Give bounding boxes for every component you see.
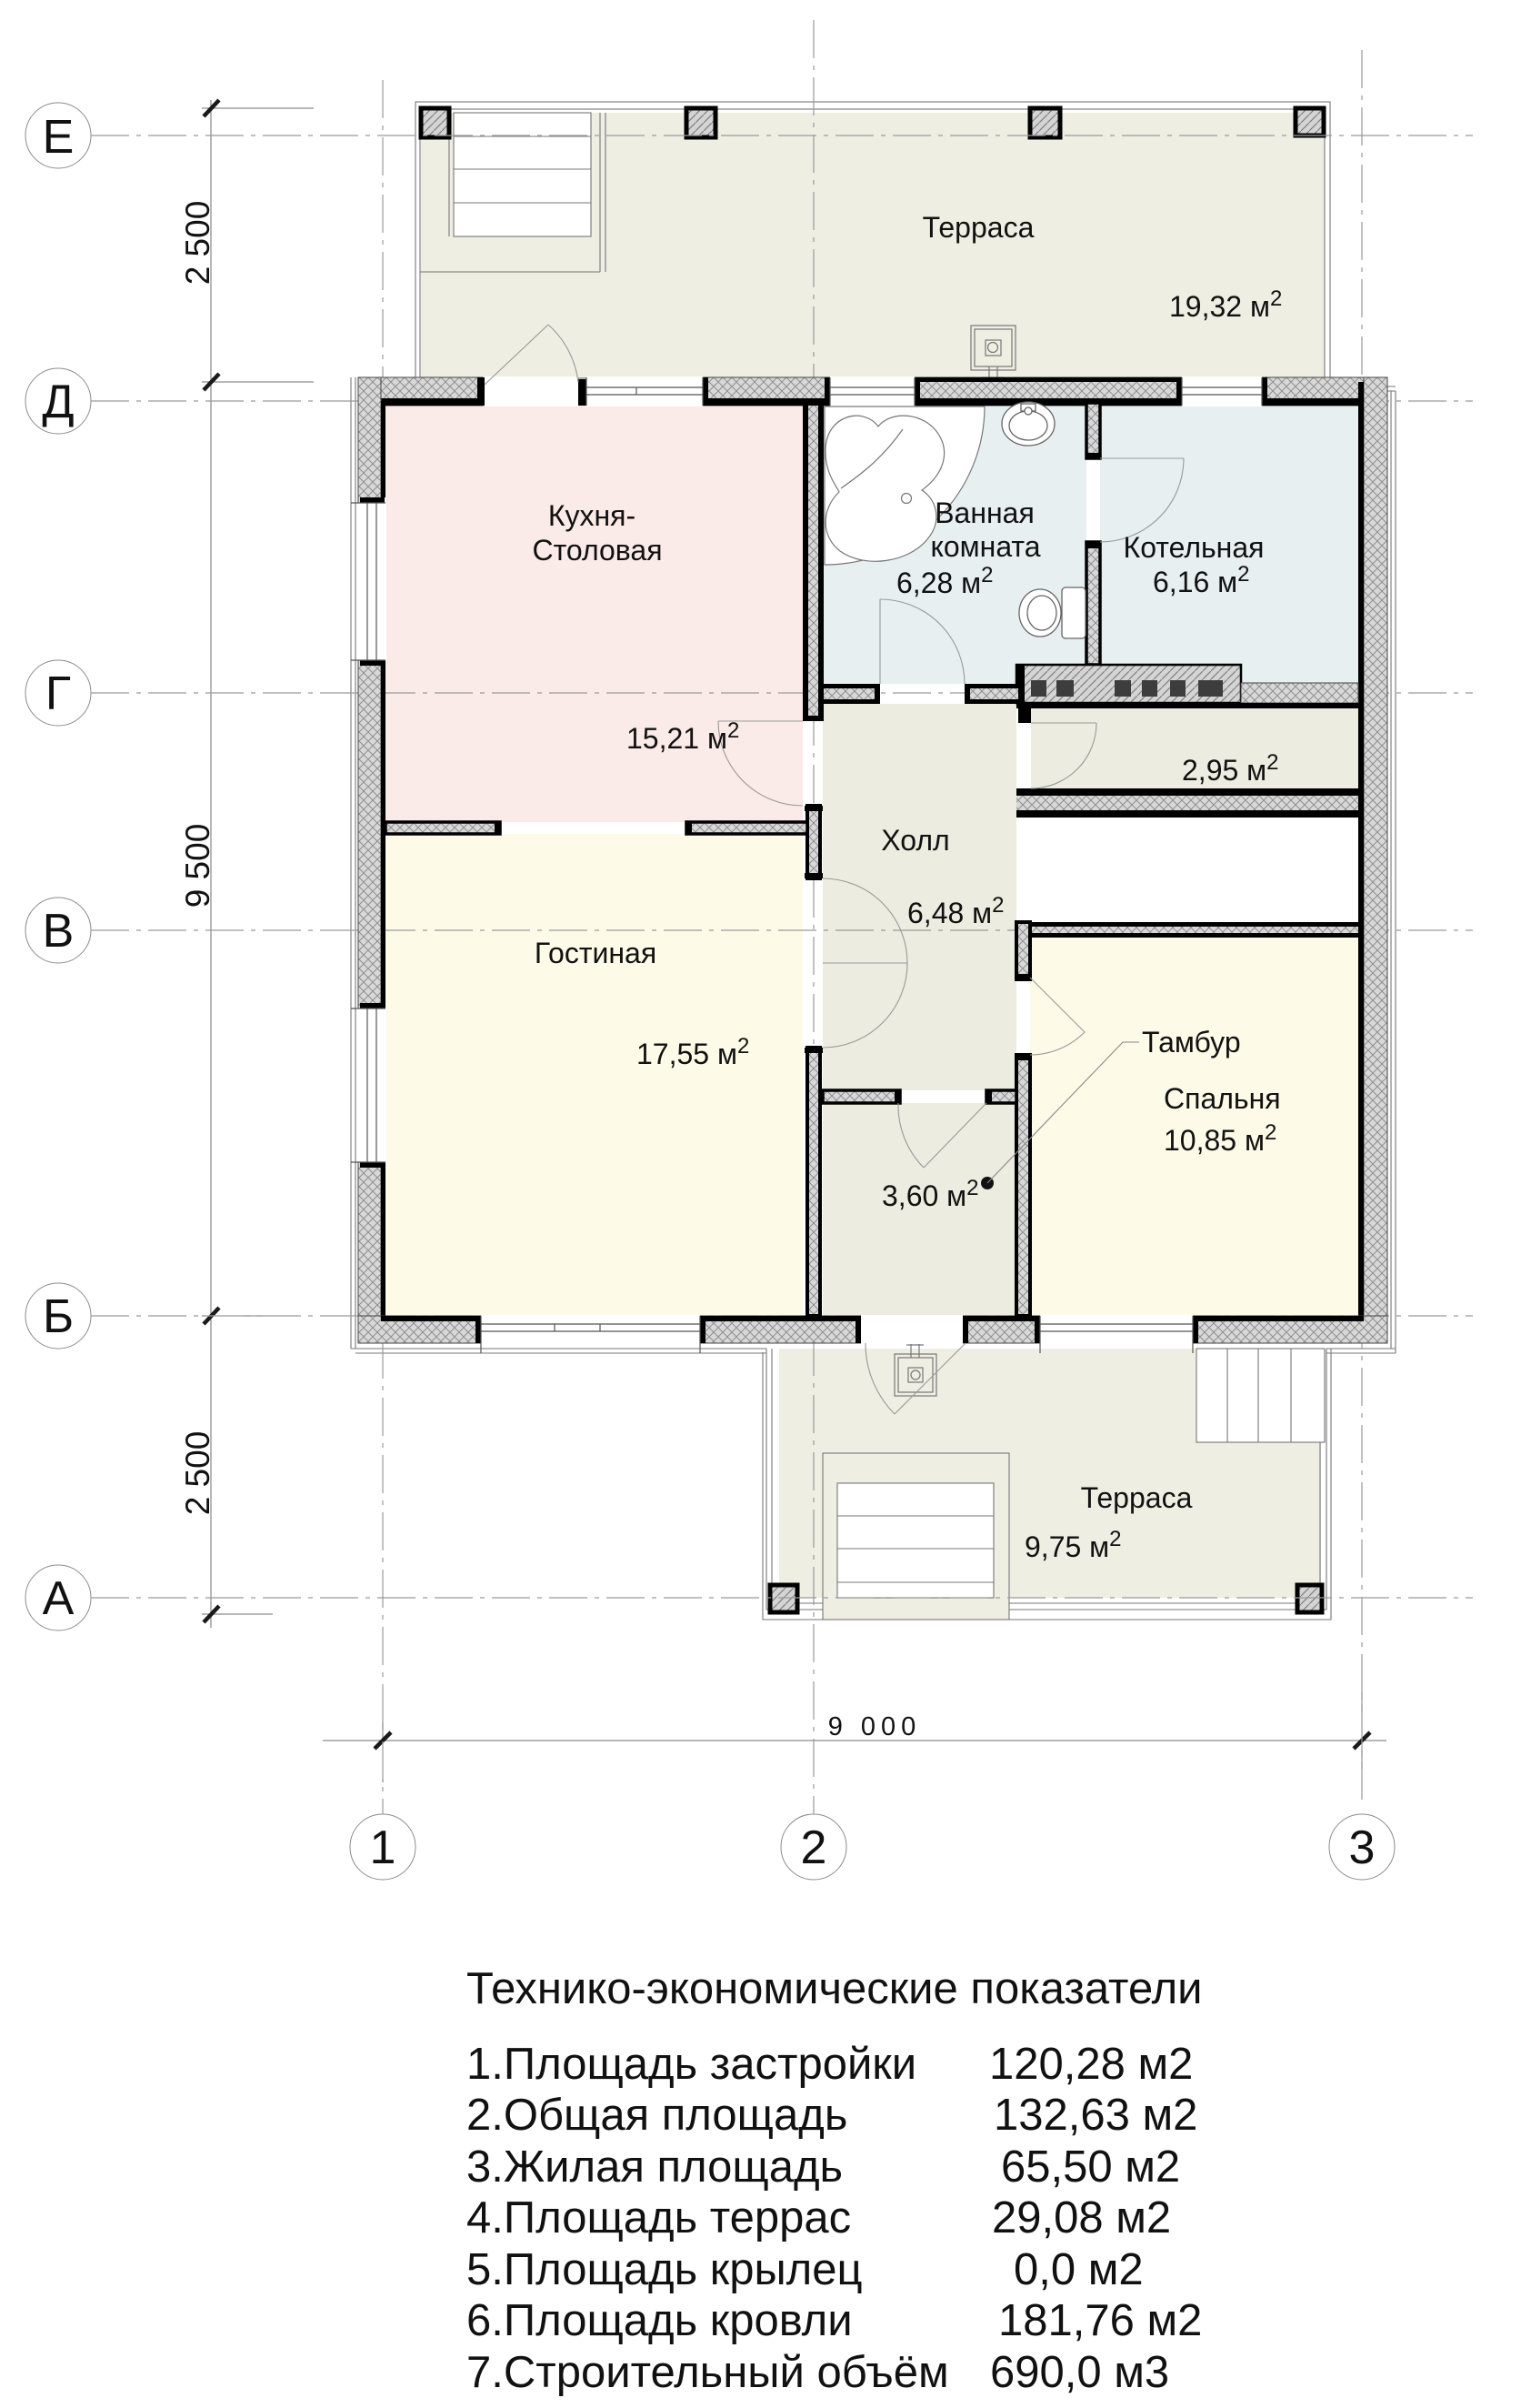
svg-text:15,21 м2: 15,21 м2	[626, 718, 739, 755]
svg-text:181,76 м2: 181,76 м2	[998, 2296, 1202, 2345]
svg-text:2: 2	[801, 1821, 827, 1874]
svg-text:6,16 м2: 6,16 м2	[1153, 562, 1250, 598]
svg-text:Б: Б	[43, 1290, 74, 1343]
svg-text:2,95 м2: 2,95 м2	[1182, 750, 1279, 787]
svg-text:2 500: 2 500	[179, 1431, 216, 1516]
svg-text:А: А	[43, 1572, 75, 1625]
svg-text:29,08 м2: 29,08 м2	[992, 2193, 1171, 2242]
svg-text:7.Строительный объём: 7.Строительный объём	[466, 2348, 949, 2397]
svg-text:9 000: 9 000	[828, 1712, 922, 1741]
svg-text:Е: Е	[43, 111, 75, 164]
svg-text:17,55 м2: 17,55 м2	[636, 1034, 749, 1070]
svg-text:В: В	[43, 905, 75, 958]
svg-text:Холл: Холл	[881, 824, 949, 857]
svg-text:Д: Д	[42, 376, 74, 428]
svg-text:Терраса: Терраса	[923, 211, 1035, 244]
svg-text:690,0 м3: 690,0 м3	[990, 2348, 1169, 2397]
svg-text:10,85 м2: 10,85 м2	[1164, 1120, 1276, 1157]
svg-text:Ванная: Ванная	[935, 497, 1035, 529]
svg-text:3,60 м2: 3,60 м2	[882, 1176, 979, 1212]
svg-text:3: 3	[1349, 1821, 1376, 1874]
svg-text:19,32 м2: 19,32 м2	[1169, 286, 1282, 323]
svg-text:4.Площадь террас: 4.Площадь террас	[466, 2193, 851, 2242]
svg-text:2 500: 2 500	[179, 201, 216, 286]
svg-text:Терраса: Терраса	[1081, 1481, 1193, 1514]
svg-text:Технико-экономические показате: Технико-экономические показатели	[466, 1964, 1203, 2013]
svg-text:9,75 м2: 9,75 м2	[1025, 1527, 1122, 1563]
svg-text:0,0 м2: 0,0 м2	[1014, 2245, 1144, 2294]
svg-text:65,50 м2: 65,50 м2	[1001, 2142, 1180, 2192]
svg-text:6.Площадь кровли: 6.Площадь кровли	[466, 2296, 853, 2345]
svg-text:6,48 м2: 6,48 м2	[907, 893, 1005, 929]
svg-text:1.Площадь застройки: 1.Площадь застройки	[466, 2040, 916, 2089]
svg-text:1: 1	[370, 1821, 396, 1874]
svg-text:Тамбур: Тамбур	[1142, 1026, 1241, 1059]
svg-text:2.Общая площадь: 2.Общая площадь	[466, 2091, 847, 2140]
svg-text:5.Площадь крылец: 5.Площадь крылец	[466, 2245, 863, 2294]
svg-text:комната: комната	[930, 530, 1040, 563]
svg-text:Г: Г	[45, 667, 71, 720]
svg-text:Котельная: Котельная	[1124, 531, 1265, 564]
svg-text:3.Жилая площадь: 3.Жилая площадь	[466, 2142, 843, 2192]
svg-text:9 500: 9 500	[179, 824, 216, 908]
svg-text:Спальня: Спальня	[1164, 1082, 1281, 1115]
svg-text:132,63 м2: 132,63 м2	[994, 2091, 1197, 2140]
svg-text:120,28 м2: 120,28 м2	[989, 2040, 1193, 2089]
svg-text:Столовая: Столовая	[532, 534, 662, 567]
svg-text:Кухня-: Кухня-	[548, 499, 635, 532]
svg-text:Гостиная: Гостиная	[535, 937, 656, 969]
svg-text:6,28 м2: 6,28 м2	[896, 563, 994, 599]
